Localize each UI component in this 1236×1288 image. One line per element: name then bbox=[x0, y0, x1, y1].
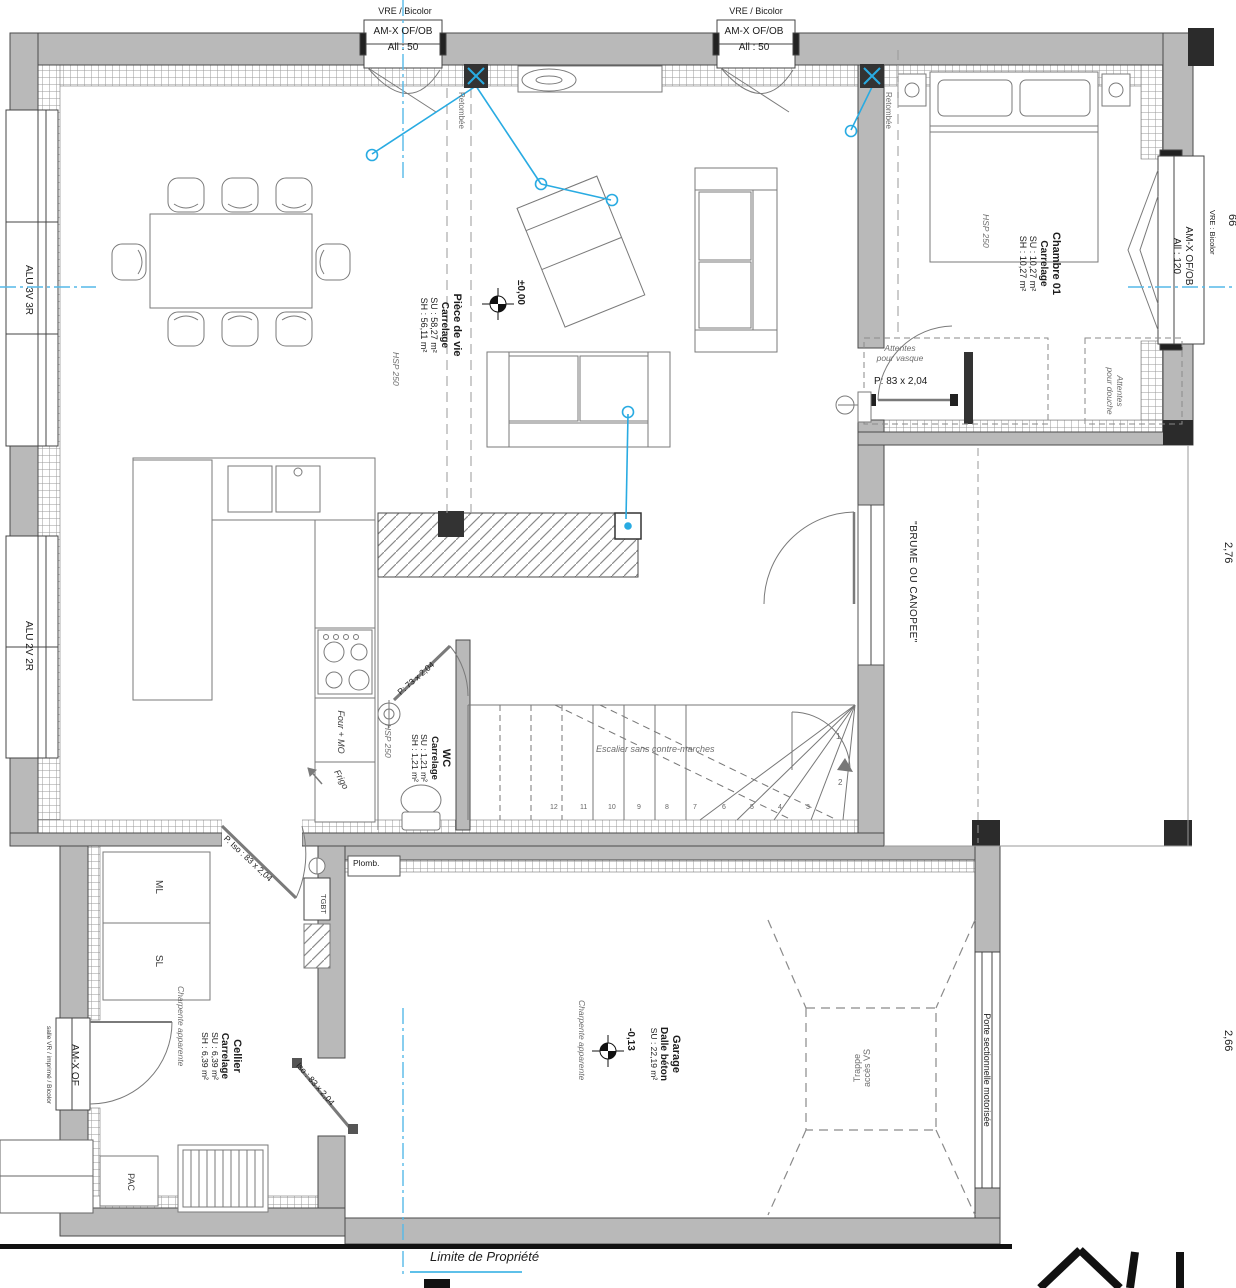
stair-number: 2 bbox=[838, 778, 842, 787]
plomb-label: Plomb. bbox=[353, 859, 379, 869]
dining-set bbox=[112, 178, 350, 346]
window-right-side-label: VRE : Bicolor bbox=[1207, 210, 1216, 270]
kitchen bbox=[133, 458, 375, 822]
tv-console bbox=[518, 66, 662, 92]
level-main-label: ±0,00 bbox=[515, 280, 527, 320]
attentes-douche-label: Attentes pour douche bbox=[1104, 352, 1124, 430]
stair-number: 7 bbox=[693, 804, 697, 811]
sectional-door-label: Porte sectionnelle motorisée bbox=[982, 972, 992, 1168]
trappe-label: Trappe accès VS bbox=[852, 1028, 873, 1108]
ml-label: ML bbox=[153, 872, 165, 902]
bay-door-label: "BRUME OU CANOPEE" bbox=[907, 503, 919, 661]
window-name-top-right: AM-X OF/OB bbox=[715, 26, 793, 38]
stair-number: 9 bbox=[637, 804, 641, 811]
stair-number: 3 bbox=[806, 804, 810, 811]
stair-label: Escalier sans contre-marches bbox=[596, 744, 715, 754]
hsp-piece-de-vie: HSP 250 bbox=[390, 352, 400, 398]
plan-linework bbox=[0, 0, 1236, 1288]
stair-number: 6 bbox=[722, 804, 726, 811]
level-marker-main bbox=[482, 288, 514, 320]
sofa-right bbox=[695, 168, 777, 352]
staircase bbox=[468, 705, 855, 820]
window-header-top-right: VRE / Bicolor bbox=[717, 6, 795, 16]
stair-number: 10 bbox=[608, 804, 616, 811]
window-allege-top-left: All : 50 bbox=[364, 42, 442, 54]
stair-number: 5 bbox=[750, 804, 754, 811]
door-dim-vasque: P: 83 x 2,04 bbox=[874, 376, 927, 388]
window-cellier-label: AM-X OF bbox=[69, 1030, 81, 1100]
room-label-wc: WC Carrelage SU : 1,21 m² SH : 1,21 m² bbox=[409, 712, 452, 804]
terrace bbox=[884, 445, 1192, 846]
retombee-label-2: Retombée bbox=[884, 92, 893, 176]
stair-number: 1 bbox=[836, 732, 840, 741]
dim-right-lower: 2,66 bbox=[1221, 1030, 1234, 1070]
room-label-piece-de-vie: Pièce de vie Carrelage SU : 58,27 m² SH … bbox=[418, 270, 463, 380]
bed bbox=[898, 72, 1130, 262]
room-label-garage: Garage Dalle béton SU : 22,19 m² bbox=[648, 1000, 682, 1108]
dim-right-top: 66 bbox=[1225, 214, 1236, 244]
lounge-chair bbox=[517, 176, 645, 327]
room-label-chambre: Chambre 01 Carrelage SU : 10,27 m² SH : … bbox=[1017, 196, 1062, 331]
window-allege-top-right: All : 50 bbox=[715, 42, 793, 54]
stair-number: 12 bbox=[550, 804, 558, 811]
window-cellier-note: salle VR / imprimé / Bicolor bbox=[45, 1026, 52, 1116]
pac-label: PAC bbox=[126, 1164, 136, 1200]
retombee-label-1: Retombée bbox=[457, 92, 466, 176]
stair-number: 4 bbox=[778, 804, 782, 811]
tgbt-label: TGBT bbox=[318, 886, 327, 922]
charpente-cellier: Charpente apparente bbox=[175, 986, 185, 1082]
window-left-lower-label: ALU 2V 2R bbox=[23, 606, 35, 686]
vasque-fixture bbox=[836, 392, 871, 422]
hsp-wc: HSP 250 bbox=[382, 724, 392, 774]
sl-label: SL bbox=[153, 946, 165, 976]
four-mo-label: Four + MO bbox=[336, 700, 346, 764]
property-limit-label: Limite de Propriété bbox=[430, 1250, 539, 1265]
level-marker-garage bbox=[592, 1035, 624, 1067]
window-right-label: AM-X OF/OB All : 120 bbox=[1171, 176, 1194, 336]
window-name-top-left: AM-X OF/OB bbox=[364, 26, 442, 38]
hsp-chambre: HSP 250 bbox=[980, 214, 990, 270]
window-left-upper-label: ALU 3V 3R bbox=[23, 250, 35, 330]
stair-number: 8 bbox=[665, 804, 669, 811]
window-header-top-left: VRE / Bicolor bbox=[366, 6, 444, 16]
stair-number: 11 bbox=[580, 804, 587, 811]
room-label-cellier: Cellier Carrelage SU : 6,39 m² SH : 6,39… bbox=[199, 1004, 243, 1108]
titleblock-cutoff bbox=[1040, 1250, 1180, 1288]
charpente-garage: Charpente apparente bbox=[576, 1000, 586, 1096]
dim-right-upper: 2,76 bbox=[1221, 542, 1234, 582]
floor-plan: VRE / Bicolor AM-X OF/OB All : 50 VRE / … bbox=[0, 0, 1236, 1288]
attentes-vasque-label: Attentes pour vasque bbox=[860, 344, 940, 364]
level-garage-label: -0,13 bbox=[625, 1028, 637, 1068]
sofa-center bbox=[487, 352, 670, 447]
